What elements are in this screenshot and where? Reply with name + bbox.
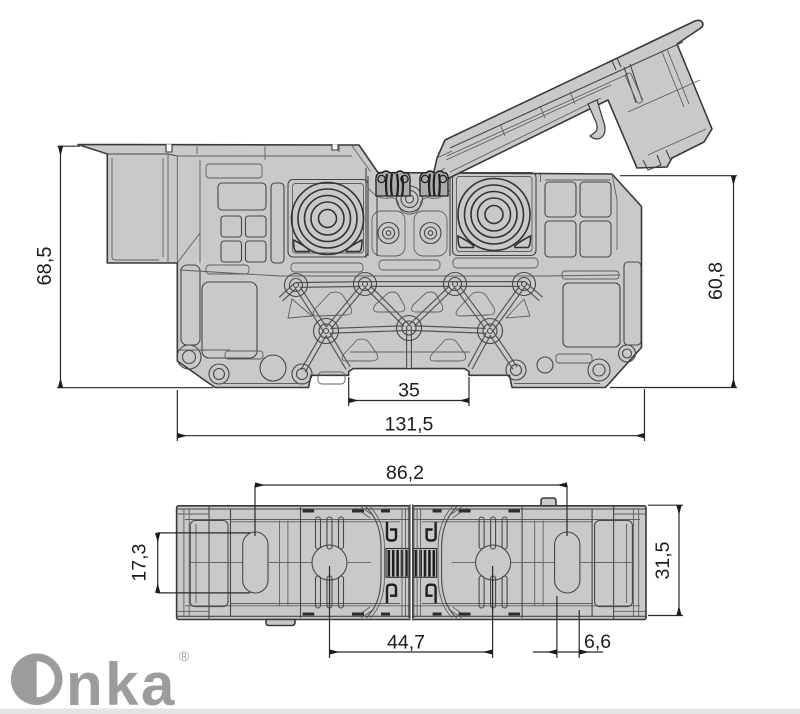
svg-text:31,5: 31,5	[652, 541, 674, 579]
svg-text:60,8: 60,8	[705, 262, 727, 300]
svg-text:nka: nka	[66, 651, 177, 714]
svg-text:6,6: 6,6	[584, 631, 611, 653]
svg-text:®: ®	[179, 648, 190, 664]
svg-text:68,5: 68,5	[34, 247, 56, 286]
svg-text:131,5: 131,5	[385, 414, 434, 436]
svg-text:35: 35	[398, 380, 420, 402]
svg-text:17,3: 17,3	[129, 544, 151, 582]
svg-text:86,2: 86,2	[386, 462, 424, 484]
svg-text:44,7: 44,7	[387, 632, 425, 654]
